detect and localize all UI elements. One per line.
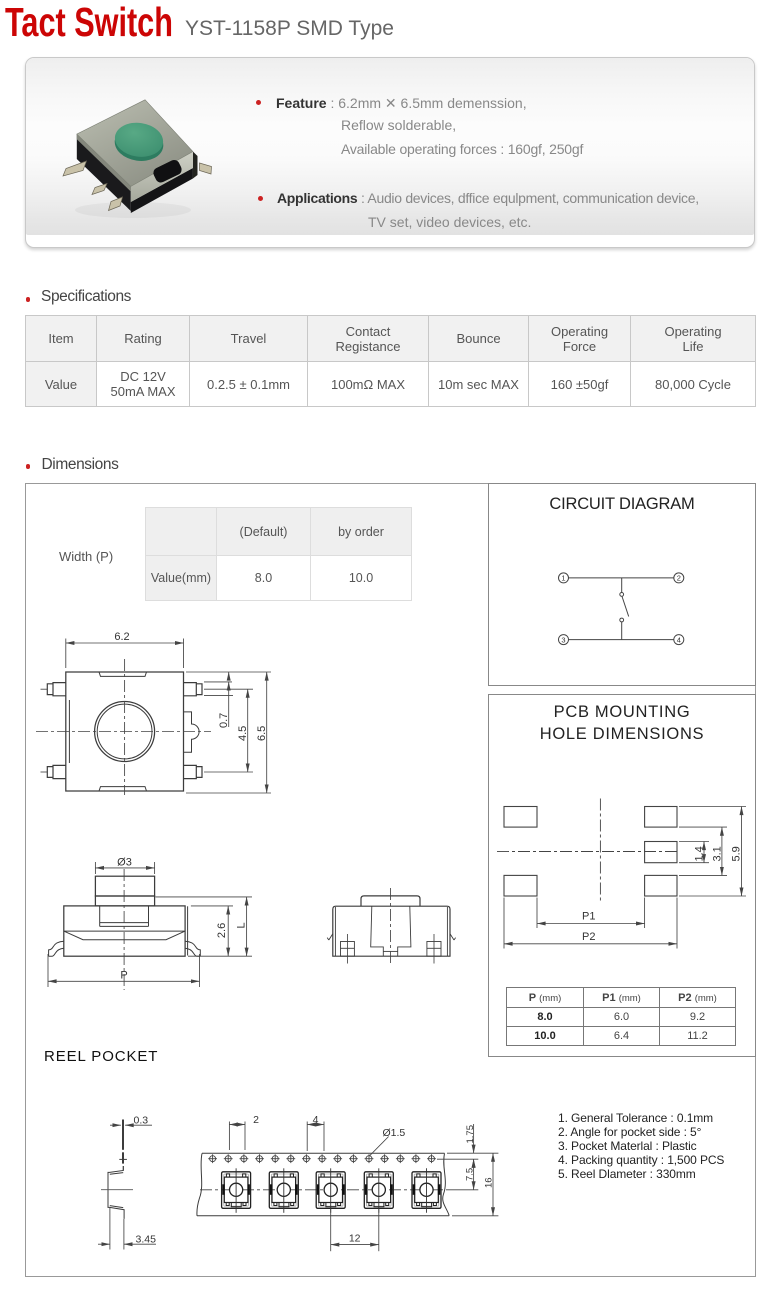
svg-text:P: P [120, 970, 127, 982]
svg-text:3.45: 3.45 [136, 1234, 157, 1246]
svg-text:2.6: 2.6 [216, 923, 228, 938]
svg-text:0.3: 0.3 [134, 1115, 149, 1127]
svg-text:1.75: 1.75 [465, 1125, 476, 1144]
svg-text:0.7: 0.7 [218, 713, 230, 728]
svg-text:Ø1.5: Ø1.5 [383, 1127, 406, 1139]
svg-text:L: L [236, 922, 248, 928]
svg-text:6.2: 6.2 [114, 631, 129, 643]
svg-text:7.5: 7.5 [465, 1168, 476, 1181]
svg-text:16: 16 [484, 1177, 495, 1188]
svg-text:2: 2 [253, 1114, 259, 1126]
svg-text:6.5: 6.5 [256, 726, 268, 741]
svg-text:Ø3: Ø3 [117, 857, 132, 869]
svg-text:4.5: 4.5 [237, 726, 249, 741]
svg-text:4: 4 [313, 1114, 319, 1126]
svg-text:12: 12 [349, 1233, 361, 1245]
